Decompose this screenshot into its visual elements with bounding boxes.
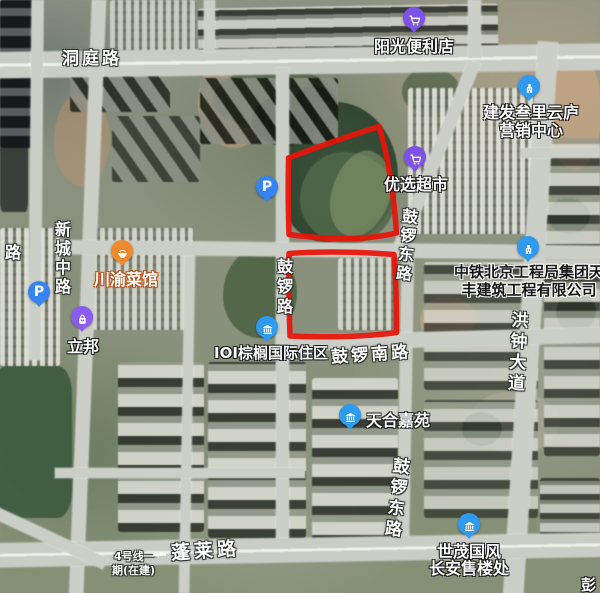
- poi-label-zhongtie-line2[interactable]: 丰建筑工程有限公司: [461, 279, 596, 300]
- poi-label-tianhe[interactable]: 天合嘉苑: [366, 407, 430, 431]
- road: [520, 148, 600, 158]
- road: [55, 468, 305, 478]
- poi-marker-chuanyu[interactable]: [111, 240, 133, 262]
- poi-marker-youxuan[interactable]: [404, 146, 426, 168]
- poi-label-jianfa-line2[interactable]: 营销中心: [499, 117, 563, 141]
- shopping-bag-icon: [76, 311, 89, 324]
- road-label-hongzhong-dadao: 洪钟大道: [502, 310, 531, 395]
- cart-icon: [409, 151, 422, 164]
- parking-icon: P: [262, 180, 272, 194]
- road: [204, 0, 215, 52]
- parking-marker[interactable]: P: [256, 176, 278, 198]
- bank-building-icon: [344, 409, 357, 422]
- road: [468, 0, 481, 58]
- road-label-gulu: 鼓锣路: [271, 258, 295, 318]
- road-label-penglai: 蓬莱路: [170, 534, 241, 566]
- cart-icon: [408, 12, 421, 25]
- restaurant-bowl-icon: [116, 245, 129, 258]
- building-cluster: [200, 78, 338, 144]
- road-label-edge-partial: 路: [5, 239, 21, 263]
- parking-marker[interactable]: P: [28, 281, 50, 303]
- building-cluster: [540, 478, 600, 538]
- poi-label-shimao-line2[interactable]: 长安售楼处: [429, 555, 509, 579]
- building-cluster: [110, 0, 196, 50]
- bank-building-icon: [261, 321, 274, 334]
- poi-marker-yangguang[interactable]: [403, 7, 425, 29]
- poi-marker-zhongtie[interactable]: [517, 236, 539, 258]
- terrain-patch: [0, 366, 72, 518]
- poi-label-peng-partial: 彭: [581, 574, 596, 593]
- building-cluster: [208, 362, 306, 538]
- road-label-metro-line2: 期(在建): [112, 562, 155, 578]
- poi-marker-libang[interactable]: [71, 306, 93, 328]
- poi-marker-jianfa[interactable]: [518, 75, 540, 97]
- road-label-xinchengzhong: 新城中路: [49, 221, 73, 297]
- building-cluster: [338, 258, 394, 330]
- office-building-icon: [523, 80, 536, 93]
- office-building-icon: [522, 241, 535, 254]
- poi-marker-ioi[interactable]: [256, 316, 278, 338]
- parking-icon: P: [34, 285, 44, 299]
- bank-building-icon: [463, 518, 476, 531]
- road-label-dongting: 洞庭路: [62, 44, 122, 69]
- poi-marker-shimao[interactable]: [458, 513, 480, 535]
- poi-marker-tianhe[interactable]: [339, 404, 361, 426]
- building-cluster: [112, 116, 200, 182]
- satellite-map[interactable]: 洞庭路 新城中路 鼓锣路 鼓锣东路 鼓锣南路 洪钟大道 鼓锣东路 蓬莱路 4号线…: [0, 0, 600, 593]
